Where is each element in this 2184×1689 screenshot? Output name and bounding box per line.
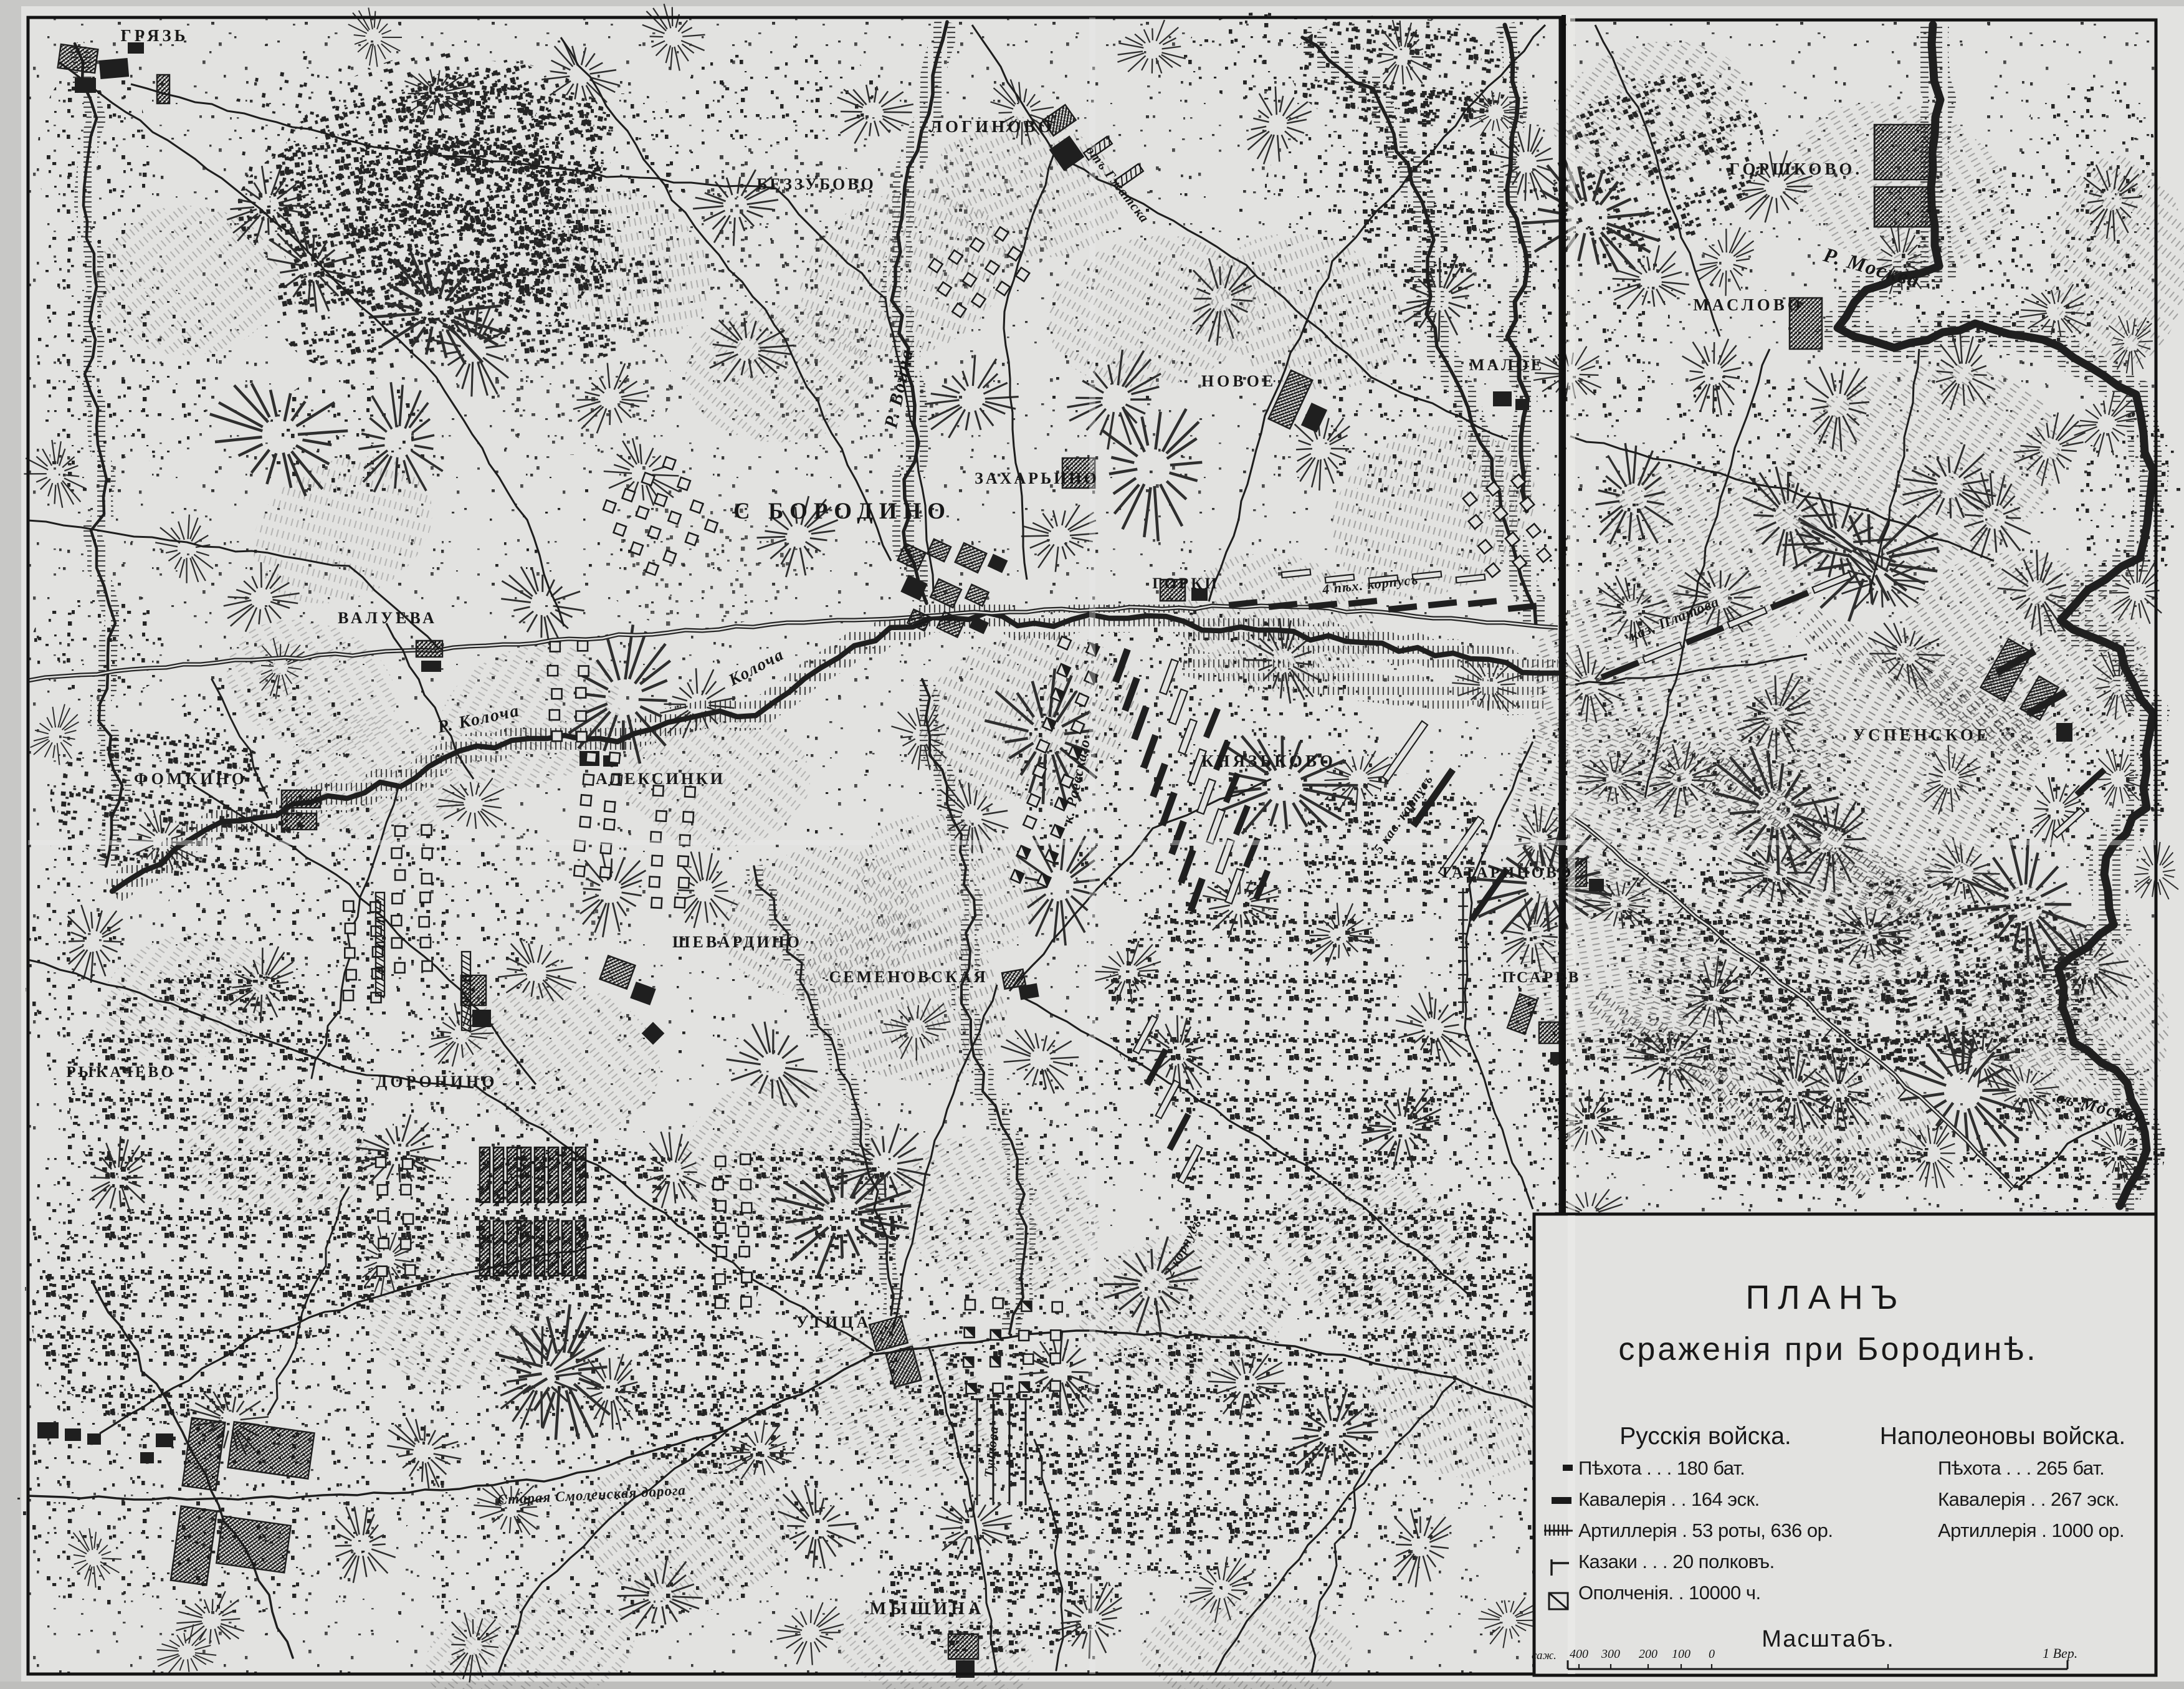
svg-text:АЛЕКСИНКИ: АЛЕКСИНКИ xyxy=(596,770,725,788)
svg-text:1 Вер.: 1 Вер. xyxy=(2043,1645,2077,1661)
svg-text:Артиллерія . 53 роты, 636 ор.: Артиллерія . 53 роты, 636 ор. xyxy=(1578,1519,1833,1541)
svg-text:КНЯЗЬКОВО: КНЯЗЬКОВО xyxy=(1201,752,1336,770)
svg-text:НОВОЕ: НОВОЕ xyxy=(1201,372,1276,390)
svg-text:МЫШИНА: МЫШИНА xyxy=(870,1599,985,1619)
svg-text:СЕМЕНОВСКАЯ: СЕМЕНОВСКАЯ xyxy=(829,968,988,986)
svg-text:УТИЦА: УТИЦА xyxy=(796,1313,872,1331)
svg-text:Ополченія. . 10000 ч.: Ополченія. . 10000 ч. xyxy=(1578,1582,1761,1604)
svg-text:ДОРОНИНО: ДОРОНИНО xyxy=(376,1073,498,1091)
svg-text:ГРЯЗЬ: ГРЯЗЬ xyxy=(121,26,189,45)
svg-text:С БОРОДИНО: С БОРОДИНО xyxy=(733,499,951,524)
svg-text:Наполеоновы войска.: Наполеоновы войска. xyxy=(1880,1423,2125,1450)
svg-text:Артиллерія . 1000 ор.: Артиллерія . 1000 ор. xyxy=(1938,1519,2124,1541)
svg-text:0: 0 xyxy=(1709,1647,1715,1661)
svg-text:МАЛОЕ: МАЛОЕ xyxy=(1469,356,1544,374)
svg-text:400: 400 xyxy=(1570,1647,1588,1661)
svg-text:100: 100 xyxy=(1672,1647,1690,1661)
svg-text:БЕЗЗУБОВО: БЕЗЗУБОВО xyxy=(756,175,876,193)
svg-text:ВАЛУЕВА: ВАЛУЕВА xyxy=(338,609,437,627)
svg-text:Казаки . . . 20 полковъ.: Казаки . . . 20 полковъ. xyxy=(1578,1551,1775,1572)
svg-text:Кавалерія . . 164 эск.: Кавалерія . . 164 эск. xyxy=(1578,1488,1760,1510)
svg-text:Кавалерія . . 267 эск.: Кавалерія . . 267 эск. xyxy=(1938,1488,2119,1510)
svg-text:Масштабъ.: Масштабъ. xyxy=(1762,1626,1895,1652)
svg-text:ПЛАНЪ: ПЛАНЪ xyxy=(1745,1279,1905,1316)
svg-text:300: 300 xyxy=(1601,1647,1620,1661)
svg-text:ПСАРЕВ: ПСАРЕВ xyxy=(1502,969,1581,986)
svg-text:саж.: саж. xyxy=(1532,1649,1557,1662)
svg-text:ЗАХАРЬИНО: ЗАХАРЬИНО xyxy=(975,469,1099,487)
svg-text:Пѣхота . . . 265 бат.: Пѣхота . . . 265 бат. xyxy=(1938,1457,2104,1479)
svg-text:ТАТАРИНОВО: ТАТАРИНОВО xyxy=(1440,864,1574,881)
svg-text:ШЕВАРДИНО: ШЕВАРДИНО xyxy=(672,933,802,951)
svg-text:ЛОГИНОВО: ЛОГИНОВО xyxy=(930,117,1054,136)
svg-text:ГОРКИ: ГОРКИ xyxy=(1152,575,1219,592)
svg-text:Русскія войска.: Русскія войска. xyxy=(1619,1423,1791,1450)
svg-text:ФОМКИНО: ФОМКИНО xyxy=(134,770,247,788)
svg-text:МАСЛОВО: МАСЛОВО xyxy=(1693,295,1804,314)
svg-text:РЫКАЧЕВО: РЫКАЧЕВО xyxy=(66,1064,175,1081)
svg-text:Пѣхота . . . 180 бат.: Пѣхота . . . 180 бат. xyxy=(1578,1457,1745,1479)
svg-text:УСПЕНСКОЕ: УСПЕНСКОЕ xyxy=(1853,725,1991,744)
svg-text:ГОРШКОВО.: ГОРШКОВО. xyxy=(1729,160,1862,178)
svg-text:сраженія при Бородинѣ.: сраженія при Бородинѣ. xyxy=(1618,1331,2038,1367)
svg-text:200: 200 xyxy=(1639,1647,1657,1661)
